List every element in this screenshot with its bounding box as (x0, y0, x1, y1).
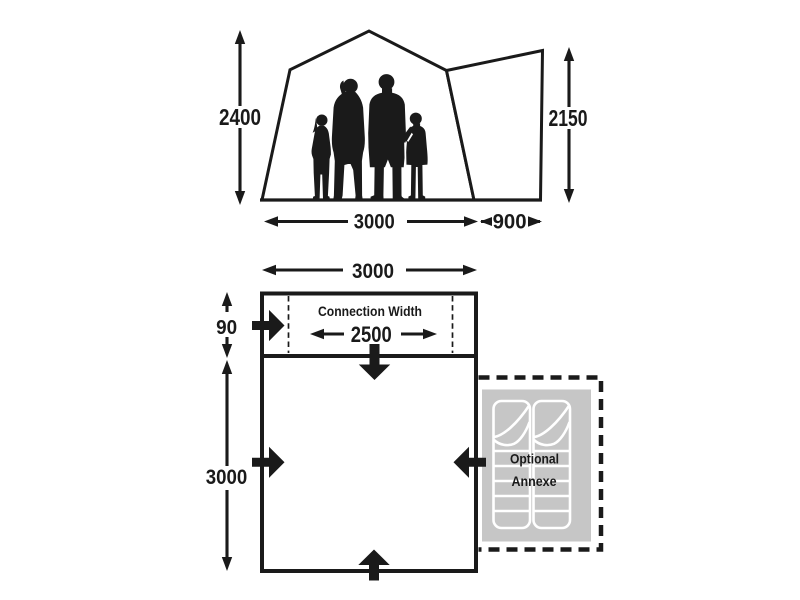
svg-text:3000: 3000 (352, 259, 394, 283)
svg-text:900: 900 (493, 209, 527, 233)
svg-text:2150: 2150 (549, 105, 588, 131)
svg-text:Connection Width: Connection Width (318, 304, 422, 319)
svg-text:Annexe: Annexe (512, 474, 557, 489)
svg-text:Optional: Optional (510, 452, 559, 467)
svg-text:3000: 3000 (206, 465, 248, 489)
svg-text:2500: 2500 (351, 322, 392, 347)
svg-text:2400: 2400 (219, 104, 261, 130)
svg-text:3000: 3000 (354, 209, 395, 233)
svg-text:90: 90 (216, 316, 237, 339)
